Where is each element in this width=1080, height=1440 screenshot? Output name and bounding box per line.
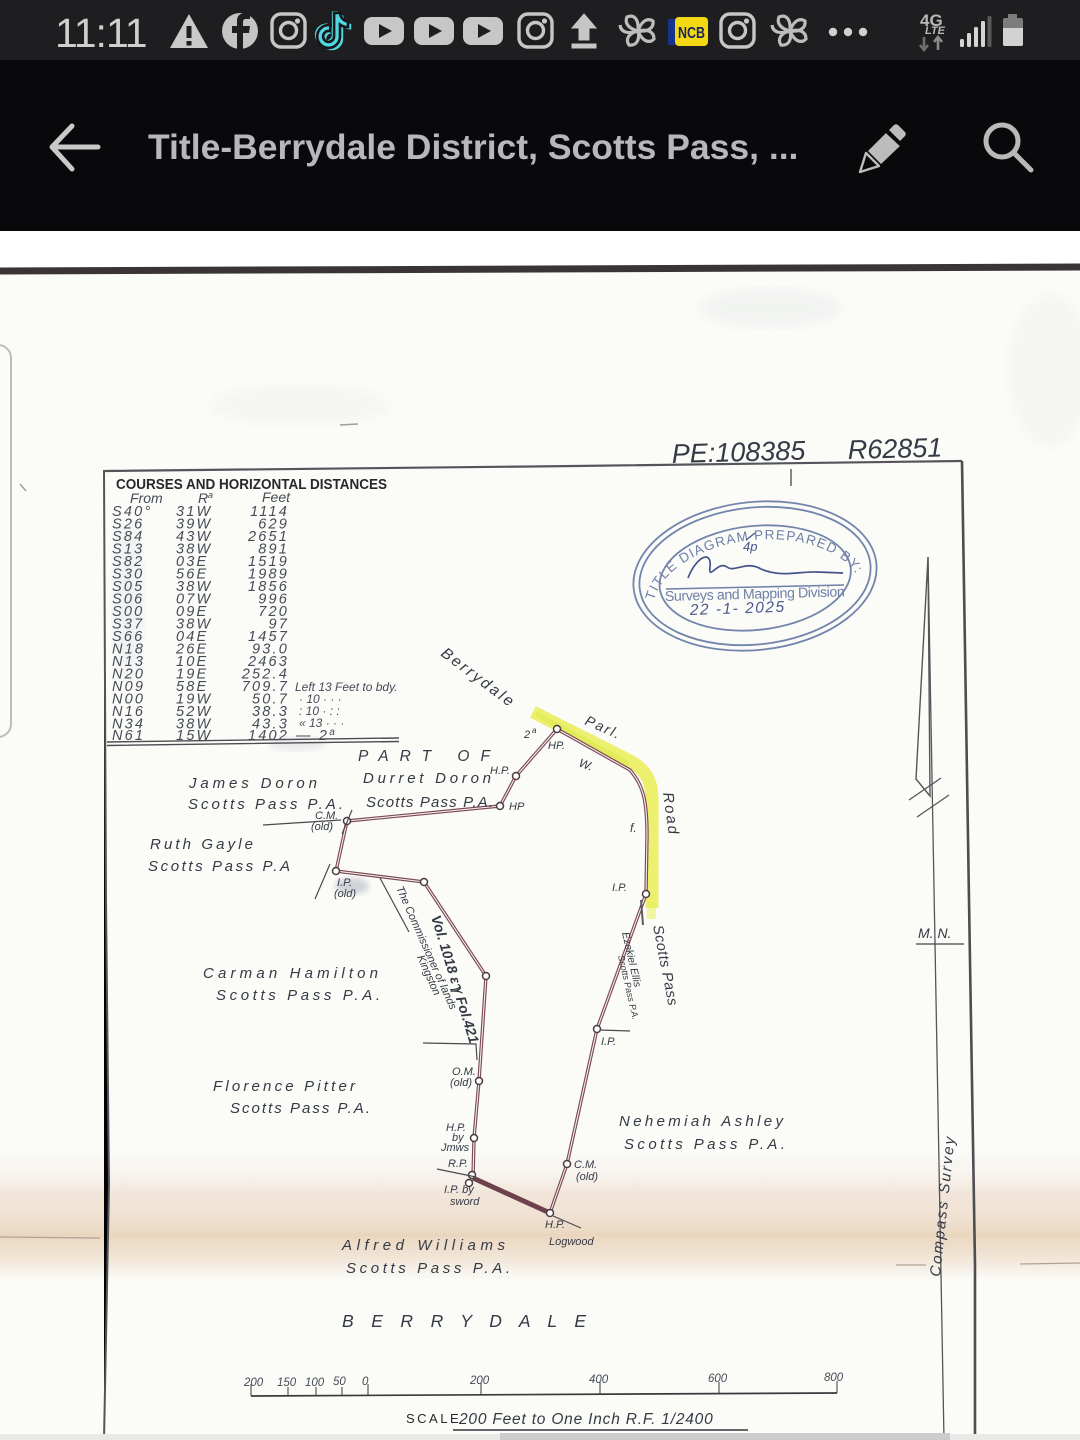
svg-text:600: 600 (708, 1373, 728, 1385)
svg-text:R62851: R62851 (847, 433, 942, 465)
svg-text:4p: 4p (743, 539, 757, 554)
svg-text:a: a (208, 490, 213, 500)
svg-text:Florence Pitter: Florence Pitter (213, 1078, 356, 1095)
svg-text:f.: f. (630, 821, 637, 835)
svg-text:I.P.: I.P. (612, 882, 627, 894)
svg-text:2: 2 (523, 729, 530, 741)
svg-text:NCB: NCB (678, 25, 705, 42)
svg-text:(old): (old) (311, 821, 333, 833)
svg-text:HP: HP (509, 801, 525, 813)
svg-text:LTE: LTE (925, 25, 946, 37)
svg-text:B E R R Y D A L E: B E R R Y D A L E (342, 1311, 586, 1331)
svg-text:0: 0 (362, 1376, 369, 1388)
svg-text:(old): (old) (576, 1171, 598, 1183)
svg-text:50: 50 (333, 1376, 346, 1388)
svg-text:H.P.: H.P. (545, 1219, 565, 1231)
svg-text:I.P.: I.P. (601, 1036, 616, 1048)
svg-text:Durret Doron: Durret Doron (363, 770, 491, 787)
svg-text:Scotts Pass P.A.: Scotts Pass P.A. (366, 794, 493, 811)
svg-text:200: 200 (469, 1375, 490, 1387)
svg-text:800: 800 (824, 1372, 844, 1384)
svg-text:R.P.: R.P. (448, 1158, 468, 1170)
svg-text:100: 100 (305, 1377, 325, 1389)
svg-text:Alfred Williams: Alfred Williams (341, 1237, 506, 1254)
svg-text:M. N.: M. N. (918, 925, 951, 941)
svg-text:James Doron: James Doron (188, 775, 317, 792)
svg-text:200 Feet to One Inch R.F. 1/24: 200 Feet to One Inch R.F. 1/2400 (458, 1411, 714, 1428)
svg-text:Ruth Gayle: Ruth Gayle (150, 836, 253, 853)
svg-text:Jmws: Jmws (440, 1142, 470, 1154)
svg-text:H.P.: H.P. (490, 765, 510, 777)
svg-text:200: 200 (243, 1377, 264, 1389)
svg-text:Logwood: Logwood (549, 1236, 595, 1248)
svg-text:sword: sword (450, 1196, 480, 1208)
svg-text:a: a (532, 726, 537, 735)
svg-text:C.M.: C.M. (574, 1159, 597, 1171)
svg-text:22 -1- 2025: 22 -1- 2025 (689, 599, 786, 619)
svg-text:11:11: 11:11 (55, 10, 147, 56)
svg-text:(old): (old) (450, 1077, 472, 1089)
svg-text:(old): (old) (334, 888, 356, 900)
svg-text:400: 400 (589, 1374, 609, 1386)
svg-text:SCALE: SCALE (406, 1411, 461, 1426)
svg-text:I.P. by: I.P. by (444, 1184, 475, 1196)
svg-text:« 13 · · ·: « 13 · · · (299, 716, 344, 730)
svg-text:Title-Berrydale District, Scot: Title-Berrydale District, Scotts Pass, .… (148, 127, 798, 167)
svg-text:Feet: Feet (262, 489, 291, 505)
svg-text:150: 150 (277, 1377, 297, 1389)
svg-text:HP.: HP. (548, 740, 565, 752)
